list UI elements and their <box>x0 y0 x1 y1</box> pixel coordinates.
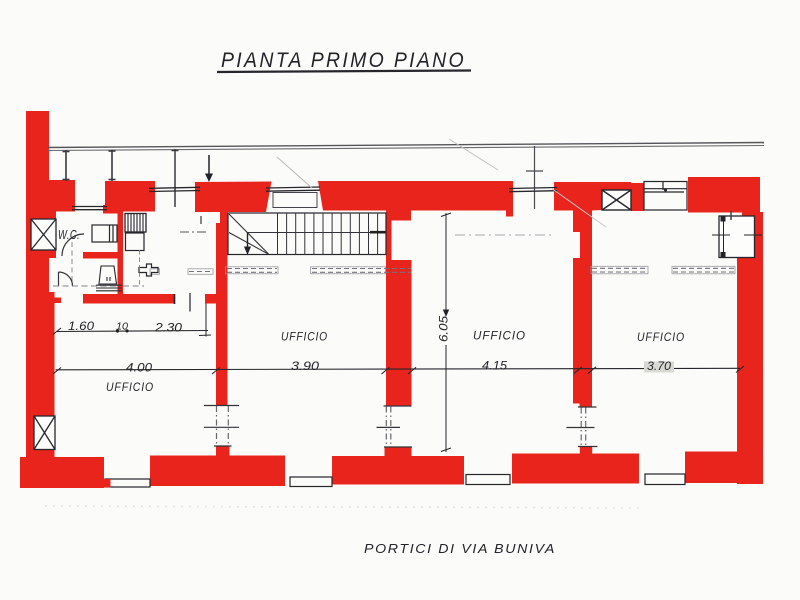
svg-text:UFFICIO: UFFICIO <box>473 329 526 343</box>
svg-text:1.60: 1.60 <box>68 321 95 333</box>
svg-text:PIANTA PRIMO PIANO: PIANTA PRIMO PIANO <box>221 49 466 72</box>
svg-text:UFFICIO: UFFICIO <box>106 380 154 394</box>
svg-text:4.00: 4.00 <box>126 361 152 375</box>
svg-text:3.90: 3.90 <box>291 359 319 373</box>
svg-text:6.05: 6.05 <box>439 315 451 342</box>
svg-text:PORTICI DI VIA BUNIVA: PORTICI DI VIA BUNIVA <box>364 541 556 556</box>
svg-text:UFFICIO: UFFICIO <box>281 330 328 344</box>
svg-text:3.70: 3.70 <box>647 359 671 373</box>
svg-text:UFFICIO: UFFICIO <box>637 330 685 344</box>
svg-text:4.15: 4.15 <box>482 359 507 373</box>
svg-text:2.30: 2.30 <box>154 323 183 335</box>
svg-text:10: 10 <box>116 321 128 333</box>
